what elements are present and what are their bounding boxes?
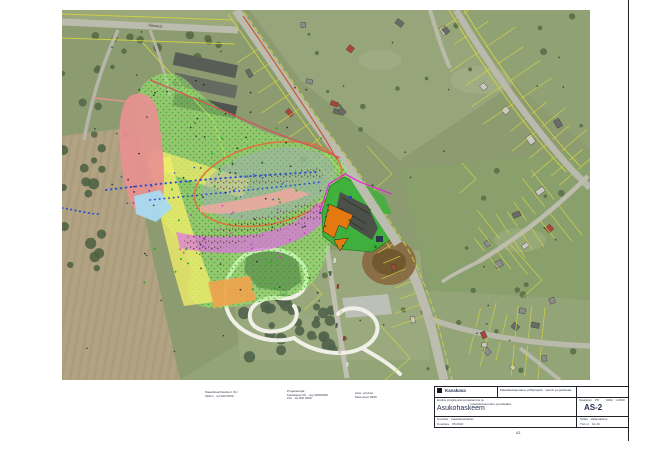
tree-icon xyxy=(215,42,221,48)
tree-icon xyxy=(569,13,575,19)
survey-dot xyxy=(327,204,329,206)
tree-icon xyxy=(110,65,115,70)
survey-dot xyxy=(256,261,258,263)
survey-dot xyxy=(372,184,374,186)
tree-icon xyxy=(263,304,273,314)
survey-dot xyxy=(202,196,204,198)
tree-icon xyxy=(579,124,583,128)
survey-dot xyxy=(236,147,238,149)
survey-dot xyxy=(375,246,377,248)
survey-dot xyxy=(486,323,488,325)
tree-icon xyxy=(543,194,547,198)
tree-icon xyxy=(481,196,486,201)
survey-dot xyxy=(203,246,205,248)
survey-dot xyxy=(143,282,145,284)
survey-dot xyxy=(111,184,113,186)
tree-icon xyxy=(92,32,100,40)
survey-dot xyxy=(223,335,225,337)
tree-icon xyxy=(322,273,328,279)
survey-dot xyxy=(180,258,182,260)
drawing-sheet: Jaama tn Maastikuarhitektuur OÜ Tallinn … xyxy=(0,0,650,459)
survey-dot xyxy=(279,286,281,288)
survey-dot xyxy=(94,128,96,130)
scale-value: 1:2000 xyxy=(615,398,624,402)
tree-icon xyxy=(85,238,96,249)
survey-dot xyxy=(253,174,255,176)
scale-label: Mõõt xyxy=(606,398,613,402)
survey-dot xyxy=(144,253,146,255)
survey-dot xyxy=(178,219,180,221)
survey-dot xyxy=(509,340,511,342)
survey-dot xyxy=(235,172,237,174)
note-block-3: Alus: ortofoto Maa-amet 2009 xyxy=(355,392,377,399)
survey-dot xyxy=(328,271,330,273)
survey-dot xyxy=(252,288,254,290)
tree-icon xyxy=(315,51,319,55)
tree-icon xyxy=(90,252,100,262)
survey-dot xyxy=(404,151,406,153)
survey-dot xyxy=(262,310,264,312)
titleblock-line xyxy=(434,427,628,428)
survey-dot xyxy=(221,137,223,139)
survey-dot xyxy=(219,170,221,172)
survey-dot xyxy=(537,85,539,87)
survey-dot xyxy=(282,183,284,185)
tree-icon xyxy=(524,282,529,287)
tree-icon xyxy=(515,287,520,292)
survey-dot xyxy=(220,51,222,53)
tree-icon xyxy=(88,178,99,189)
survey-dot xyxy=(304,225,306,227)
survey-dot xyxy=(187,262,189,264)
drawing-number: AS-2 xyxy=(584,403,602,412)
tree-icon xyxy=(244,351,255,362)
survey-dot xyxy=(251,244,253,246)
survey-dot xyxy=(369,209,371,211)
survey-dot xyxy=(270,261,272,263)
survey-dot xyxy=(254,219,256,221)
survey-dot xyxy=(327,209,329,211)
survey-dot xyxy=(111,47,113,49)
note-line: info · tel 000 0000 xyxy=(287,397,328,401)
survey-dot xyxy=(174,172,176,174)
survey-dot xyxy=(304,232,306,234)
survey-dot xyxy=(274,288,276,290)
survey-dot xyxy=(127,202,129,204)
tree-icon xyxy=(468,67,472,71)
stage-label: Staadium xyxy=(579,398,592,402)
survey-dot xyxy=(138,153,140,155)
survey-dot xyxy=(262,177,264,179)
survey-dot xyxy=(240,196,242,198)
tree-icon xyxy=(95,65,100,70)
survey-dot xyxy=(487,305,489,307)
tree-icon xyxy=(60,222,69,231)
note-line: Tallinn · tel 000 0000 xyxy=(205,395,238,399)
tree-icon xyxy=(338,104,341,107)
survey-dot xyxy=(148,190,150,192)
small-basin xyxy=(376,236,383,242)
tree-icon xyxy=(98,166,105,173)
survey-dot xyxy=(359,320,361,322)
tree-icon xyxy=(60,71,65,76)
survey-dot xyxy=(190,127,192,129)
tree-icon xyxy=(570,348,576,354)
tree-icon xyxy=(79,99,87,107)
survey-dot xyxy=(317,292,319,294)
work-number-value: 10-10 xyxy=(592,422,600,426)
survey-dot xyxy=(136,74,138,76)
survey-dot xyxy=(211,153,213,155)
survey-dot xyxy=(188,181,190,183)
survey-dot xyxy=(324,225,326,227)
tree-icon xyxy=(276,345,286,355)
survey-dot xyxy=(121,176,123,178)
survey-dot xyxy=(277,252,279,254)
date-value: 05.2010 xyxy=(452,422,463,426)
survey-dot xyxy=(544,227,546,229)
work-number-label: Töö nr xyxy=(580,422,589,426)
survey-dot xyxy=(200,268,202,270)
company-logo xyxy=(437,388,442,393)
tree-icon xyxy=(295,326,305,336)
survey-dot xyxy=(383,324,385,326)
survey-dot xyxy=(195,80,197,82)
tree-icon xyxy=(494,329,498,333)
survey-dot xyxy=(210,258,212,260)
date-field: Kuupäev 05.2010 xyxy=(437,423,463,427)
tree-icon xyxy=(268,322,275,329)
survey-dot xyxy=(319,212,321,214)
sheet-title: Asukohaskeem xyxy=(437,405,485,413)
tree-icon xyxy=(60,184,67,191)
survey-dot xyxy=(295,190,297,192)
survey-dot xyxy=(166,91,168,93)
tree-icon xyxy=(518,368,523,373)
survey-dot xyxy=(154,248,156,250)
survey-dot xyxy=(351,221,353,223)
survey-dot xyxy=(185,249,187,251)
note-block-2: Projekteerija: Kavakava OÜ · reg 0000000… xyxy=(287,390,328,401)
survey-dot xyxy=(280,256,282,258)
survey-dot xyxy=(231,162,233,164)
survey-dot xyxy=(232,211,234,213)
survey-dot xyxy=(194,122,196,124)
survey-dot xyxy=(285,142,287,144)
survey-dot xyxy=(278,198,280,200)
survey-dot xyxy=(153,205,155,207)
tree-icon xyxy=(98,144,106,152)
survey-dot xyxy=(286,127,288,129)
tree-icon xyxy=(58,145,68,155)
survey-dot xyxy=(276,127,278,129)
tree-icon xyxy=(80,164,89,173)
survey-dot xyxy=(241,215,243,217)
survey-dot xyxy=(127,179,129,181)
survey-dot xyxy=(193,167,195,169)
survey-dot xyxy=(153,95,155,97)
survey-dot xyxy=(483,266,485,268)
survey-dot xyxy=(290,165,292,167)
survey-dot xyxy=(343,85,345,87)
tree-icon xyxy=(427,367,430,370)
survey-dot xyxy=(289,239,291,241)
survey-dot xyxy=(133,191,135,193)
survey-dot xyxy=(235,197,237,199)
tree-icon xyxy=(358,127,363,132)
tree-icon xyxy=(137,36,144,43)
tree-icon xyxy=(326,90,329,93)
scale-field: Mõõt 1:2000 xyxy=(606,399,625,403)
survey-dot xyxy=(278,218,280,220)
tree-icon xyxy=(121,48,126,53)
note-line: Maa-amet 2009 xyxy=(355,396,377,400)
survey-dot xyxy=(563,86,565,88)
survey-dot xyxy=(320,137,322,139)
survey-dot xyxy=(141,31,143,33)
tree-icon xyxy=(67,262,73,268)
survey-dot xyxy=(240,289,242,291)
work-number-field: Töö nr 10-10 xyxy=(580,423,600,427)
survey-dot xyxy=(185,247,187,249)
stage-value: PP xyxy=(595,398,599,402)
tree-icon xyxy=(314,316,320,322)
survey-dot xyxy=(342,245,344,247)
survey-dot xyxy=(555,239,557,241)
client-value: Vallavalitsus xyxy=(591,417,608,421)
survey-dot xyxy=(197,118,199,120)
survey-dot xyxy=(195,135,197,137)
survey-dot xyxy=(277,208,279,210)
survey-dot xyxy=(204,136,206,138)
house xyxy=(301,22,306,27)
survey-dot xyxy=(183,252,185,254)
survey-dot xyxy=(282,225,284,227)
survey-dot xyxy=(175,271,177,273)
tree-icon xyxy=(308,33,311,36)
survey-dot xyxy=(174,351,176,353)
worn-patch xyxy=(358,50,402,70)
note-block-1: Maastikuarhitektuur OÜ Tallinn · tel 000… xyxy=(205,391,238,398)
survey-dot xyxy=(302,226,304,228)
tree-icon xyxy=(97,230,106,239)
survey-dot xyxy=(219,168,221,170)
date-label: Kuupäev xyxy=(437,422,449,426)
project-title-line: Maastikukujunduse põhiprojekt · spordi- … xyxy=(500,389,626,393)
survey-dot xyxy=(271,226,273,228)
tree-icon xyxy=(456,320,461,325)
tree-icon xyxy=(395,86,400,91)
survey-dot xyxy=(183,177,185,179)
survey-dot xyxy=(220,228,222,230)
tree-icon xyxy=(94,103,102,111)
flag-marker xyxy=(349,196,352,199)
survey-dot xyxy=(116,133,118,135)
survey-dot xyxy=(276,300,278,302)
survey-dot xyxy=(251,248,253,250)
survey-dot xyxy=(146,255,148,257)
tree-icon xyxy=(425,77,429,81)
tree-icon xyxy=(313,304,320,311)
survey-dot xyxy=(294,87,296,89)
tree-icon xyxy=(360,104,366,110)
client-label: Tellija xyxy=(580,417,588,421)
survey-dot xyxy=(222,205,224,207)
survey-dot xyxy=(214,185,216,187)
survey-dot xyxy=(309,277,311,279)
tree-icon xyxy=(91,157,97,163)
survey-dot xyxy=(190,214,192,216)
survey-dot xyxy=(230,233,232,235)
tree-icon xyxy=(186,31,194,39)
survey-dot xyxy=(320,190,322,192)
survey-dot xyxy=(325,216,327,218)
survey-dot xyxy=(204,239,206,241)
survey-dot xyxy=(250,92,252,94)
survey-dot xyxy=(225,113,227,115)
survey-dot xyxy=(265,198,267,200)
survey-dot xyxy=(558,57,560,59)
survey-dot xyxy=(229,172,231,174)
format-label: A3 xyxy=(516,431,520,435)
survey-dot xyxy=(319,300,321,302)
tree-icon xyxy=(471,288,476,293)
survey-dot xyxy=(233,190,235,192)
survey-dot xyxy=(250,111,252,113)
survey-dot xyxy=(203,84,205,86)
survey-dot xyxy=(200,244,202,246)
survey-dot xyxy=(133,186,135,188)
survey-dot xyxy=(305,89,307,91)
company-name: Kavakava xyxy=(445,388,466,393)
house xyxy=(541,355,547,361)
survey-dot xyxy=(160,300,162,302)
survey-dot xyxy=(448,89,450,91)
tree-icon xyxy=(312,335,317,340)
survey-dot xyxy=(200,167,202,169)
tree-icon xyxy=(494,168,500,174)
survey-dot xyxy=(151,185,153,187)
survey-dot xyxy=(349,219,351,221)
tree-icon xyxy=(540,48,547,55)
survey-dot xyxy=(476,332,478,334)
survey-dot xyxy=(146,116,148,118)
survey-dot xyxy=(154,92,156,94)
survey-dot xyxy=(392,42,394,44)
survey-dot xyxy=(410,177,412,179)
tree-icon xyxy=(538,26,543,31)
survey-dot xyxy=(218,173,220,175)
survey-dot xyxy=(272,199,274,201)
survey-dot xyxy=(138,89,140,91)
survey-dot xyxy=(179,248,181,250)
survey-dot xyxy=(171,188,173,190)
survey-dot xyxy=(225,192,227,194)
survey-dot xyxy=(443,150,445,152)
survey-dot xyxy=(245,137,247,139)
survey-dot xyxy=(231,213,233,215)
survey-dot xyxy=(133,202,135,204)
sheet-frame-right xyxy=(628,0,629,441)
survey-dot xyxy=(279,201,281,203)
titleblock-line xyxy=(434,386,435,427)
survey-dot xyxy=(86,348,88,350)
titleblock-line xyxy=(497,386,498,397)
tree-icon xyxy=(465,246,469,250)
tree-icon xyxy=(85,190,93,198)
survey-dot xyxy=(261,162,263,164)
tree-icon xyxy=(325,316,336,327)
survey-dot xyxy=(220,263,222,265)
tree-icon xyxy=(91,131,98,138)
tree-icon xyxy=(558,190,565,197)
tree-icon xyxy=(94,265,100,271)
